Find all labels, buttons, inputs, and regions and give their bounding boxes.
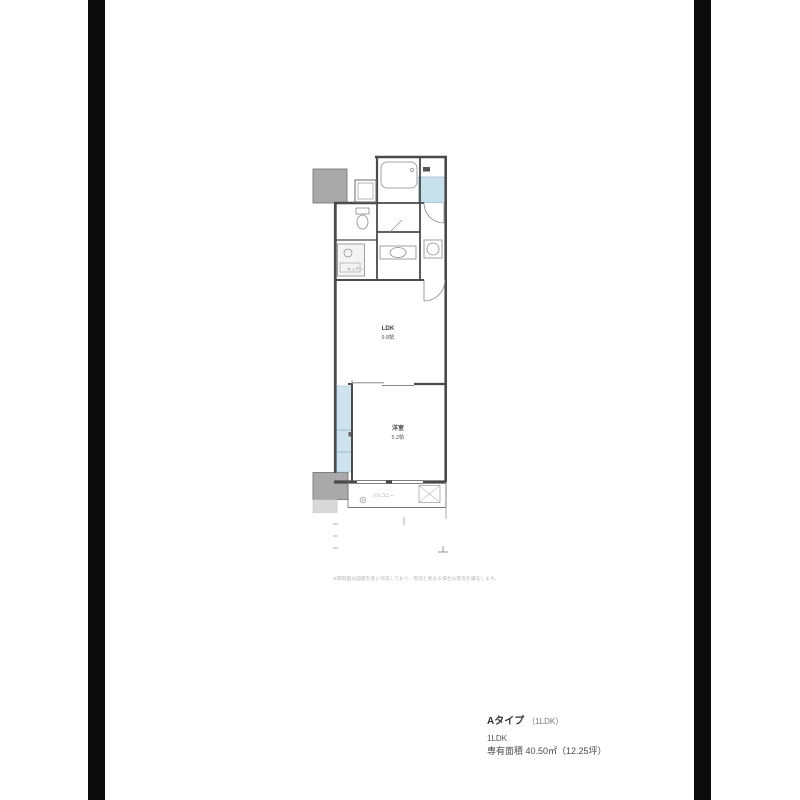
left-black-band (88, 0, 105, 800)
balcony: バルコニー (348, 482, 446, 508)
bedroom-label: 洋室 (392, 424, 404, 432)
closet-blue-area (337, 386, 352, 472)
ldk-door-arc (424, 280, 445, 301)
plan-name: Aタイプ (487, 716, 524, 727)
plan-name-note: （1LDK） (527, 717, 563, 726)
right-black-band (694, 0, 711, 800)
washing-machine (424, 240, 442, 258)
floor-plan-drawing: キッチン LDK 9.8帖 洋室 5.2帖 バルコニー (300, 140, 480, 580)
drain-symbol (360, 497, 366, 503)
bedroom-window (357, 479, 423, 484)
sliding-door-partition (348, 380, 446, 388)
pillar-top-left (313, 169, 347, 203)
evacuation-hatch (419, 486, 440, 503)
balcony-label: バルコニー (372, 493, 394, 498)
ldk-size-label: 9.8帖 (382, 333, 395, 341)
kitchen-label: キッチン (347, 267, 364, 272)
plan-area: 専有面積 40.50㎡（12.25坪） (487, 746, 607, 756)
pillar-bottom-left (313, 473, 348, 500)
plan-disclaimer-text: ※間取図は図面を基に作成しており、現況と異なる場合は現況を優先します。 (333, 576, 493, 582)
dimension-marks (333, 508, 448, 552)
entrance-door-arc (424, 203, 444, 223)
porch-light-fixture (423, 167, 430, 172)
plan-name-line: Aタイプ（1LDK） (487, 716, 607, 727)
ps-box (355, 180, 376, 202)
washbasin (380, 246, 416, 259)
floor-plan: キッチン LDK 9.8帖 洋室 5.2帖 バルコニー (300, 140, 480, 580)
porch-blue-area (419, 177, 446, 203)
bathtub (381, 162, 417, 232)
ldk-label: LDK (382, 325, 395, 332)
bedroom-size-label: 5.2帖 (392, 433, 405, 441)
pillar-bottom-base (313, 500, 337, 513)
plan-info-block: Aタイプ（1LDK） 1LDK 専有面積 40.50㎡（12.25坪） (487, 716, 607, 756)
toilet (356, 208, 369, 229)
plan-layout: 1LDK (487, 734, 607, 743)
